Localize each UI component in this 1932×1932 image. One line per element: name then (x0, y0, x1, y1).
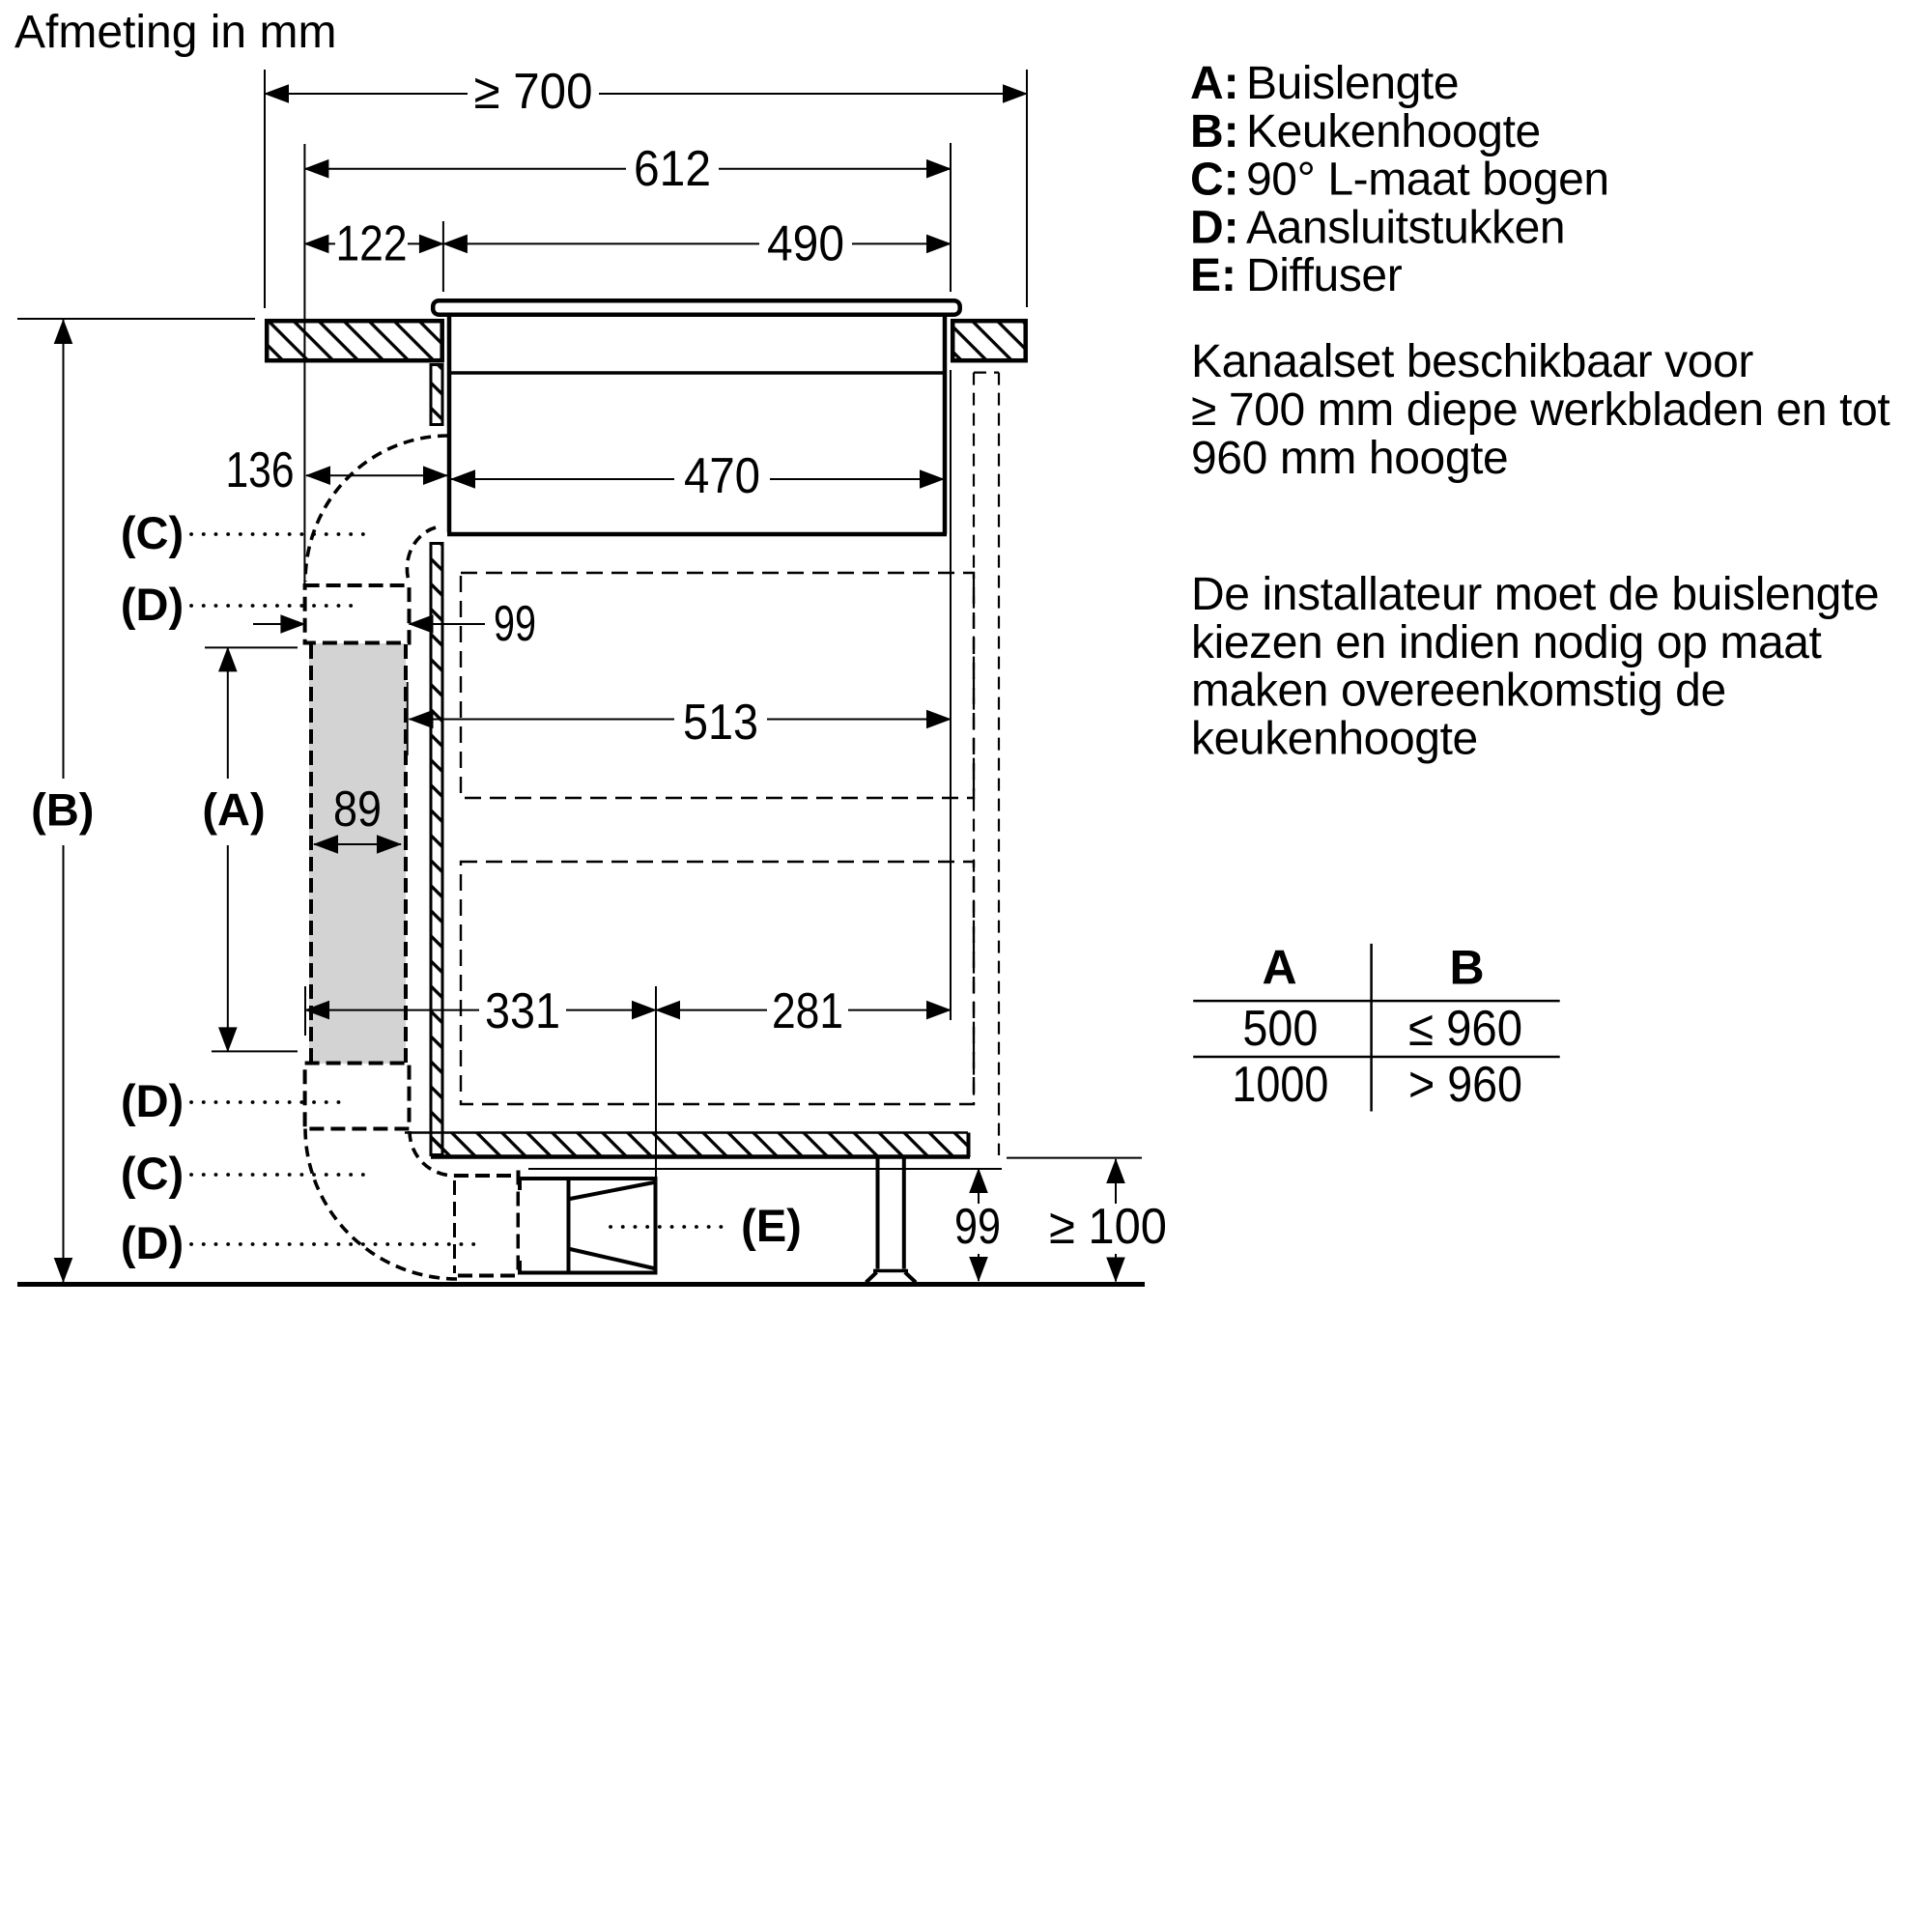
svg-text:500: 500 (1242, 1001, 1318, 1057)
svg-text:B: B (1449, 941, 1484, 995)
svg-text:89: 89 (333, 781, 382, 838)
svg-text:A:: A: (1190, 58, 1239, 109)
svg-text:keukenhoogte: keukenhoogte (1191, 713, 1478, 764)
svg-text:> 960: > 960 (1408, 1057, 1522, 1113)
svg-text:1000: 1000 (1232, 1057, 1328, 1113)
svg-text:470: 470 (684, 448, 760, 504)
svg-text:Afmeting in mm: Afmeting in mm (14, 7, 336, 58)
svg-text:513: 513 (683, 695, 758, 751)
svg-text:≥ 100: ≥ 100 (1049, 1199, 1167, 1255)
svg-text:612: 612 (634, 141, 711, 197)
svg-text:(C): (C) (121, 1148, 184, 1199)
svg-text:490: 490 (767, 216, 844, 272)
svg-text:≥ 700 mm diepe werkbladen en t: ≥ 700 mm diepe werkbladen en tot (1191, 384, 1889, 436)
svg-text:D:: D: (1190, 202, 1239, 253)
svg-text:331: 331 (485, 983, 560, 1039)
svg-text:(D): (D) (121, 579, 184, 630)
svg-text:960 mm hoogte: 960 mm hoogte (1191, 433, 1508, 484)
svg-text:(C): (C) (121, 507, 184, 558)
svg-text:maken overeenkomstig de: maken overeenkomstig de (1191, 666, 1726, 717)
svg-text:Buislengte: Buislengte (1246, 58, 1459, 109)
svg-text:B:: B: (1190, 106, 1239, 157)
svg-text:A: A (1263, 941, 1297, 995)
svg-text:(D): (D) (121, 1075, 184, 1126)
svg-text:281: 281 (772, 983, 843, 1039)
svg-text:(D): (D) (121, 1217, 184, 1268)
svg-text:De installateur moet de buisle: De installateur moet de buislengte (1191, 569, 1879, 620)
svg-text:(B): (B) (31, 784, 94, 836)
svg-text:(E): (E) (741, 1200, 802, 1251)
svg-text:≤ 960: ≤ 960 (1408, 1001, 1522, 1057)
svg-text:122: 122 (336, 216, 408, 272)
svg-text:Keukenhoogte: Keukenhoogte (1246, 106, 1541, 157)
svg-text:(A): (A) (202, 784, 265, 836)
svg-text:99: 99 (954, 1199, 1001, 1255)
svg-text:C:: C: (1190, 155, 1239, 206)
svg-text:Aansluitstukken: Aansluitstukken (1246, 202, 1565, 253)
svg-text:136: 136 (226, 442, 295, 498)
svg-text:Diffuser: Diffuser (1246, 250, 1403, 301)
svg-text:≥ 700: ≥ 700 (474, 64, 593, 120)
svg-text:90° L-maat bogen: 90° L-maat bogen (1246, 155, 1609, 206)
svg-text:E:: E: (1190, 250, 1236, 301)
svg-text:99: 99 (494, 596, 536, 652)
svg-text:Kanaalset beschikbaar voor: Kanaalset beschikbaar voor (1191, 336, 1753, 387)
svg-text:kiezen en indien nodig op maat: kiezen en indien nodig op maat (1191, 617, 1822, 668)
